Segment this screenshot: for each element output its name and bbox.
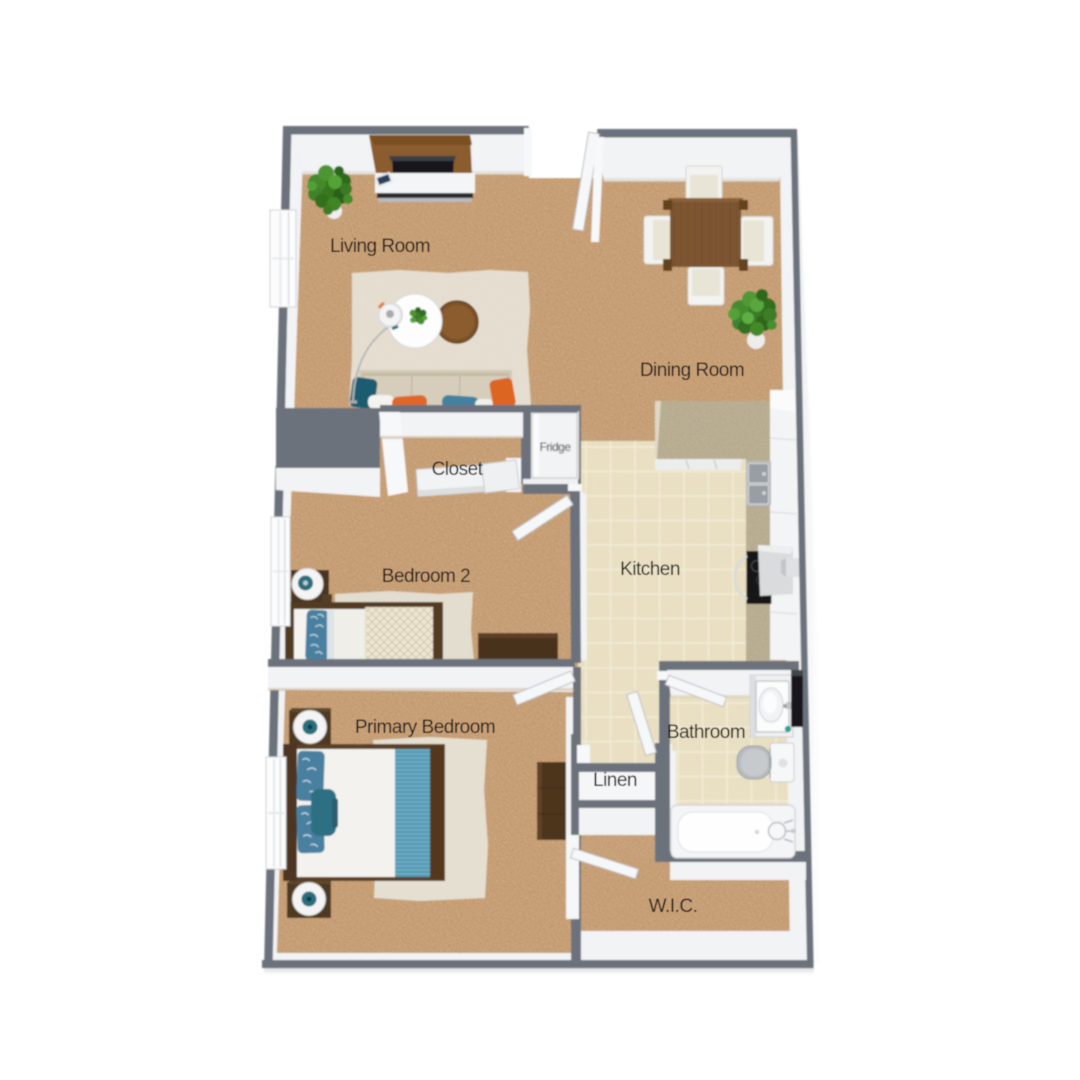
svg-text:Dining Room: Dining Room bbox=[640, 360, 744, 381]
svg-text:Primary Bedroom: Primary Bedroom bbox=[355, 717, 495, 738]
svg-text:Closet: Closet bbox=[432, 459, 484, 480]
svg-text:W.I.C.: W.I.C. bbox=[649, 896, 698, 917]
svg-text:Bedroom 2: Bedroom 2 bbox=[382, 566, 470, 587]
svg-text:Linen: Linen bbox=[593, 770, 637, 791]
svg-text:Kitchen: Kitchen bbox=[620, 559, 680, 580]
svg-text:Living Room: Living Room bbox=[330, 236, 430, 257]
svg-text:Fridge: Fridge bbox=[539, 440, 571, 454]
svg-text:Bathroom: Bathroom bbox=[667, 722, 745, 743]
